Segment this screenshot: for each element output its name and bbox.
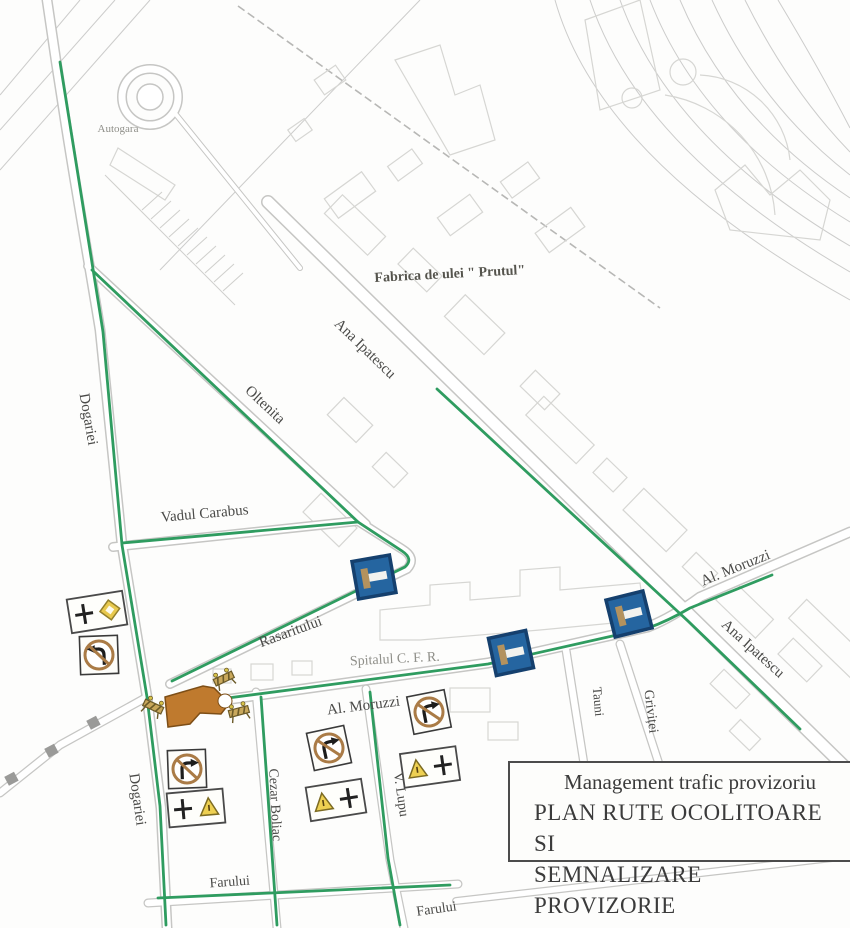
plan-subtitle: Management trafic provizoriu bbox=[534, 767, 846, 797]
no-right-turn-sign bbox=[167, 749, 206, 788]
road-closure-barrier-icon bbox=[211, 667, 237, 692]
railway-yard-lines bbox=[0, 0, 850, 300]
plan-title-line-2: SEMNALIZARE PROVIZORIE bbox=[534, 859, 846, 921]
route-oltenita bbox=[92, 270, 358, 522]
road-closure-area bbox=[165, 686, 232, 727]
railway-dashed-line bbox=[238, 6, 660, 308]
plan-title-line-1: PLAN RUTE OCOLITOARE SI bbox=[534, 797, 846, 859]
label-vadul-carabus: Vadul Carabus bbox=[160, 502, 249, 526]
label-dogariei-2: Dogariei bbox=[125, 772, 148, 826]
label-dogariei: Dogariei bbox=[76, 392, 101, 446]
plan-title-box: Management trafic provizoriu PLAN RUTE O… bbox=[508, 761, 850, 862]
priority-intersection-panel-sign bbox=[67, 591, 128, 633]
label-tauni: Tauni bbox=[590, 686, 608, 717]
label-farului-2: Farului bbox=[415, 899, 457, 919]
label-farului: Farului bbox=[209, 874, 250, 892]
route-vadul-carabus bbox=[122, 522, 358, 543]
label-fabrica: Fabrica de ulei " Prutul" bbox=[374, 263, 525, 286]
dead-end-street-sign bbox=[352, 555, 396, 599]
no-left-turn-sign bbox=[79, 635, 118, 674]
label-rasaritului: Rasaritului bbox=[257, 613, 324, 651]
label-al-moruzzi-south: Al. Moruzzi bbox=[326, 694, 401, 719]
priority-intersection-panel-sign bbox=[167, 789, 226, 828]
label-autogara: Autogara bbox=[98, 123, 139, 135]
no-right-turn-sign bbox=[306, 725, 351, 770]
parking-hatch bbox=[105, 175, 243, 305]
priority-intersection-panel-sign bbox=[400, 746, 460, 787]
roundabout-island bbox=[137, 84, 163, 110]
no-right-turn-sign bbox=[407, 690, 452, 735]
priority-intersection-panel-sign bbox=[306, 779, 367, 821]
dead-end-street-sign bbox=[606, 591, 652, 637]
dead-end-street-sign bbox=[488, 630, 533, 675]
